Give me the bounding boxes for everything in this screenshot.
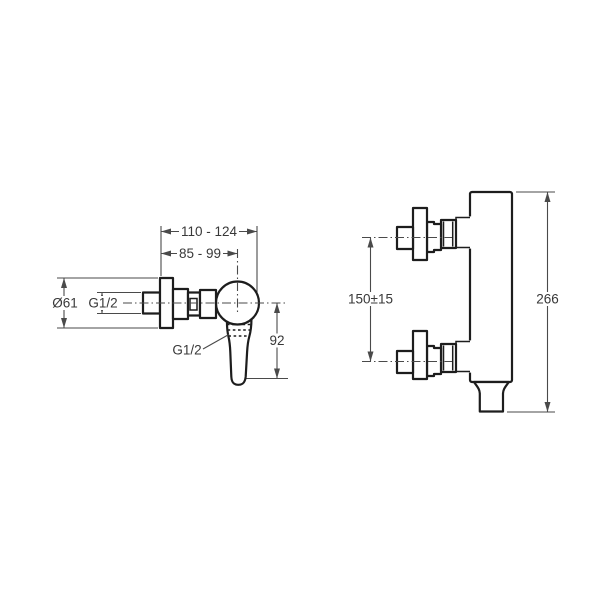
dim-width-inner: 85 - 99 <box>161 246 238 261</box>
top-inlet-assembly <box>397 208 456 260</box>
front-view: 110 - 124 85 - 99 Ø61 G1/2 92 G1 <box>51 224 288 385</box>
dim-label-inlet-thread: G1/2 <box>88 296 117 311</box>
dim-width-outer: 110 - 124 <box>161 224 257 239</box>
dim-label-outlet-thread: G1/2 <box>172 343 201 358</box>
front-view-mixer-body <box>143 278 259 385</box>
connector-step <box>173 289 188 319</box>
bottom-escutcheon-flange <box>413 331 427 379</box>
side-view: 150±15 266 <box>347 192 562 412</box>
mixer-column-body <box>470 192 512 382</box>
top-boss-opening <box>456 216 472 248</box>
technical-drawing-svg: 110 - 124 85 - 99 Ø61 G1/2 92 G1 <box>0 0 600 600</box>
top-escutcheon-flange <box>413 208 427 260</box>
dim-overall-height: 266 <box>507 192 562 412</box>
dim-label-handle-drop: 92 <box>269 333 284 348</box>
body-cylinder <box>200 290 216 318</box>
bottom-inlet-assembly <box>397 331 456 379</box>
dim-inlet-spacing: 150±15 <box>347 238 395 362</box>
outlet-spout <box>474 382 509 412</box>
bottom-boss-opening <box>456 340 472 372</box>
outlet-thread-leader-line <box>203 335 229 350</box>
dim-inlet-thread: G1/2 <box>87 293 119 314</box>
technical-drawing-page: 110 - 124 85 - 99 Ø61 G1/2 92 G1 <box>0 0 600 600</box>
dim-handle-drop: 92 <box>267 303 287 379</box>
dim-label-inlet-spacing: 150±15 <box>348 292 393 307</box>
dim-label-width-inner: 85 - 99 <box>179 246 221 261</box>
dim-label-overall-height: 266 <box>536 292 559 307</box>
dim-outlet-thread: G1/2 <box>172 335 228 358</box>
dim-label-width-outer: 110 - 124 <box>181 224 238 239</box>
dim-escutcheon-diameter: Ø61 <box>51 278 79 328</box>
dim-label-escutcheon-diameter: Ø61 <box>52 296 78 311</box>
